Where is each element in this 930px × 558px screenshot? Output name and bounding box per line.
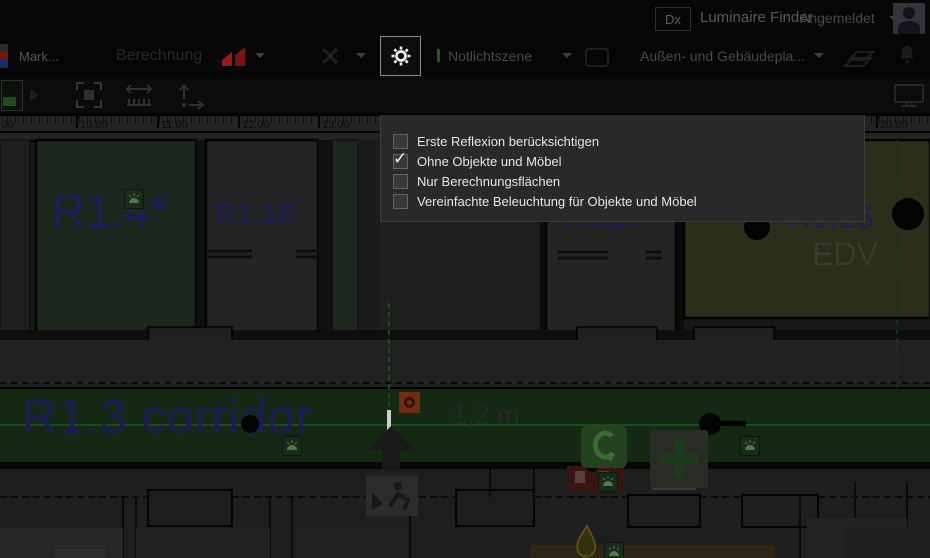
ruler-label: 12,00 [242, 119, 270, 131]
option-label: Erste Reflexion berücksichtigen [417, 134, 599, 149]
app-window: R1.4* R1.18 R1.17 R1.16 EDV R1.3 corrido… [0, 0, 930, 558]
move-origin-icon[interactable] [175, 82, 205, 115]
avatar[interactable] [893, 3, 925, 34]
ruler-label: 13,00 [322, 119, 350, 131]
avatar-head [903, 7, 915, 19]
top-bar: Dx Luminaire Finder Angemeldet [0, 0, 930, 36]
first-aid-sign-icon[interactable] [650, 430, 708, 493]
planning-mode-dropdown[interactable]: Außen- und Gebäudepla... [640, 48, 805, 64]
avatar-body [898, 21, 920, 34]
option-row[interactable]: ✓ Ohne Objekte und Möbel [393, 151, 697, 171]
option-row[interactable]: ✓ Erste Reflexion berücksichtigen [393, 131, 697, 151]
option-row[interactable]: ✓ Nur Berechnungsflächen [393, 171, 697, 191]
room-label-corridor: R1.3 corridor [22, 390, 312, 445]
chevron-down-icon[interactable] [562, 53, 572, 58]
option-label: Nur Berechnungsflächen [417, 174, 560, 189]
layers-icon[interactable] [843, 46, 875, 73]
option-label: Vereinfachte Beleuchtung für Objekte und… [417, 194, 697, 209]
emergency-luminaire-icon[interactable] [282, 436, 302, 456]
scene-option-checkbox-3[interactable]: ✓ [393, 194, 408, 209]
check-icon: ✓ [393, 149, 407, 169]
hearing-protection-sign-icon[interactable] [581, 426, 627, 473]
room-label-r118: R1.18 [215, 198, 295, 232]
option-row[interactable]: ✓ Vereinfachte Beleuchtung für Objekte u… [393, 191, 697, 211]
exit-sign-icon[interactable] [366, 476, 418, 521]
luminaire-arm [719, 421, 746, 426]
emergency-scene-indicator [437, 49, 440, 62]
monitor-icon[interactable] [893, 83, 925, 114]
chevron-down-icon[interactable] [814, 53, 824, 58]
bell-icon[interactable] [896, 44, 918, 71]
flame-symbol-icon [571, 524, 601, 558]
calculation-chart-icon[interactable] [222, 45, 246, 72]
scene-settings-button[interactable] [380, 36, 421, 76]
dimension-label: 1,2 m [452, 400, 520, 431]
luminaire-dot[interactable] [892, 198, 924, 230]
scene-option-checkbox-2[interactable]: ✓ [393, 174, 408, 189]
room-r118 [206, 140, 318, 332]
ruler-label: 11,00 [161, 119, 188, 131]
alarm-symbol-icon[interactable] [399, 392, 420, 413]
room-label-r14: R1.4* [52, 184, 167, 238]
active-tool-button[interactable] [1, 80, 23, 111]
ruler-label: 20,00 [880, 119, 908, 131]
calculation-label[interactable]: Berechnung [116, 47, 202, 65]
luminaire-dot[interactable] [241, 415, 259, 433]
direction-arrow-icon [364, 426, 418, 475]
account-label: Angemeldet [800, 10, 875, 26]
emergency-luminaire-icon[interactable] [740, 436, 760, 456]
option-label: Ohne Objekte und Möbel [417, 154, 562, 169]
app-title: Luminaire Finder [700, 9, 813, 26]
room-label-edv: EDV [812, 236, 878, 273]
chevron-down-icon[interactable] [356, 53, 366, 58]
close-scene-icon[interactable] [320, 46, 340, 71]
logo-text: Dx [665, 12, 681, 27]
main-toolbar: Mark... Berechnung Notlichtszene [0, 36, 930, 76]
scene-preview-icon[interactable] [585, 48, 609, 67]
emergency-scene-dropdown[interactable]: Notlichtszene [448, 48, 532, 64]
emergency-luminaire-icon[interactable] [124, 189, 144, 209]
emergency-luminaire-icon[interactable] [598, 472, 618, 492]
emergency-luminaire-icon[interactable] [604, 542, 624, 558]
gear-icon [390, 45, 412, 67]
ruler-label: 10,00 [80, 119, 108, 131]
measure-tool-icon[interactable] [124, 84, 154, 113]
selection-tool-icon[interactable] [76, 82, 102, 108]
secondary-toolbar [0, 76, 930, 115]
account-menu[interactable]: Angemeldet [800, 10, 899, 26]
mark-tool-icon[interactable] [0, 44, 9, 69]
mark-tool-label[interactable]: Mark... [19, 49, 59, 64]
chevron-down-icon[interactable] [255, 53, 265, 58]
luminaire-finder-logo[interactable]: Dx [655, 7, 691, 31]
scene-option-checkbox-1[interactable]: ✓ [393, 154, 408, 169]
expand-arrow-icon[interactable] [30, 89, 39, 101]
scene-options-list: ✓ Erste Reflexion berücksichtigen ✓ Ohne… [393, 131, 697, 211]
scene-option-checkbox-0[interactable]: ✓ [393, 134, 408, 149]
ruler-label: ,00 [0, 119, 13, 131]
